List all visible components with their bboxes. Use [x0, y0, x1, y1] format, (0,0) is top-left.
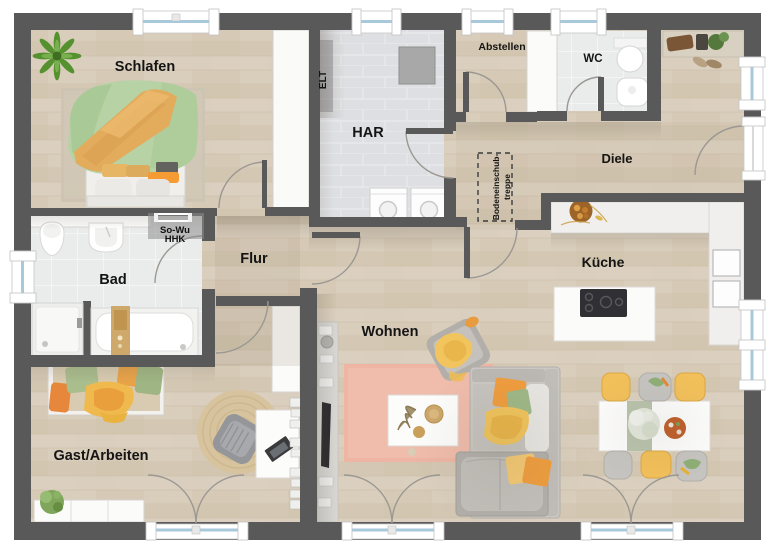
svg-text:treppe: treppe	[502, 174, 512, 200]
svg-text:Küche: Küche	[582, 254, 625, 270]
svg-text:HHK: HHK	[165, 234, 186, 245]
svg-text:HAR: HAR	[352, 125, 384, 141]
svg-text:WC: WC	[583, 53, 602, 65]
svg-text:Bad: Bad	[99, 272, 126, 288]
svg-text:Flur: Flur	[240, 251, 268, 267]
svg-text:Diele: Diele	[601, 151, 632, 166]
svg-text:Wohnen: Wohnen	[362, 324, 419, 340]
svg-text:Schlafen: Schlafen	[115, 59, 175, 75]
svg-text:Gast/Arbeiten: Gast/Arbeiten	[53, 448, 148, 464]
svg-text:Bodeneinschub-: Bodeneinschub-	[491, 154, 501, 221]
svg-text:ELT: ELT	[318, 71, 329, 89]
svg-text:Abstellen: Abstellen	[478, 41, 525, 53]
